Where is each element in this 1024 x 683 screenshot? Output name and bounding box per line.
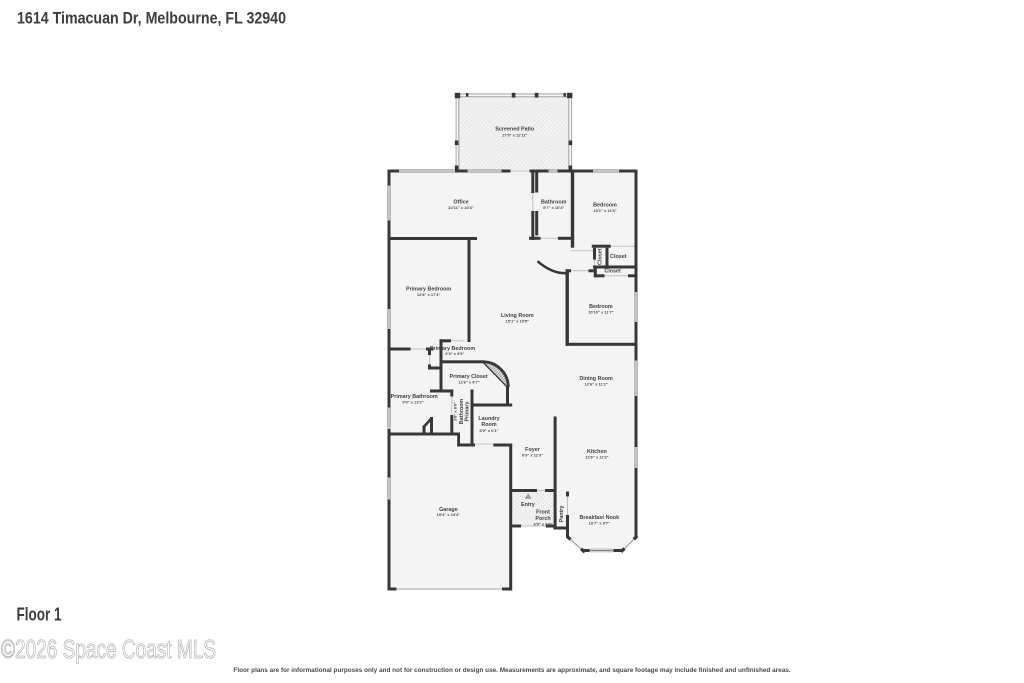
svg-text:Closet: Closet: [604, 268, 621, 274]
svg-text:12'6" x 6'7": 12'6" x 6'7": [458, 379, 479, 384]
svg-text:12'8" x 17'4": 12'8" x 17'4": [417, 292, 441, 297]
svg-text:Pantry: Pantry: [559, 506, 565, 523]
svg-text:12'6" x 11'2": 12'6" x 11'2": [584, 381, 607, 386]
svg-text:4'3" x 3'9": 4'3" x 3'9": [445, 351, 464, 356]
svg-text:10'10" x 11'7": 10'10" x 11'7": [588, 310, 614, 315]
svg-text:Laundry: Laundry: [478, 416, 499, 422]
svg-text:5'7" x 10'4": 5'7" x 10'4": [543, 205, 564, 210]
svg-text:15'1" x 19'5": 15'1" x 19'5": [506, 319, 530, 324]
svg-text:12'6" x 11'3": 12'6" x 11'3": [585, 455, 608, 460]
svg-text:9'9" x 13'2": 9'9" x 13'2": [402, 399, 423, 404]
svg-text:10'1" x 11'8": 10'1" x 11'8": [593, 208, 616, 213]
svg-text:10'7" x 9'7": 10'7" x 9'7": [589, 521, 610, 526]
svg-text:Front: Front: [536, 510, 550, 516]
svg-text:Closet: Closet: [610, 254, 627, 260]
svg-text:3'8" x 8'9": 3'8" x 8'9": [452, 402, 457, 421]
svg-text:8'9" x 6'1": 8'9" x 6'1": [479, 428, 498, 433]
svg-text:6'9" x 11'3": 6'9" x 11'3": [522, 452, 543, 457]
svg-text:17'9" x 11'11": 17'9" x 11'11": [502, 133, 527, 138]
svg-text:Closet: Closet: [597, 248, 603, 265]
svg-text:Floor plans are for informatio: Floor plans are for informational purpos…: [233, 667, 790, 674]
svg-text:22'11" x 10'4": 22'11" x 10'4": [448, 205, 474, 210]
svg-text:Bathroom: Bathroom: [459, 399, 465, 425]
svg-text:Entry: Entry: [521, 502, 535, 508]
svg-text:Primary: Primary: [465, 401, 471, 421]
svg-text:©2026 Space Coast MLS: ©2026 Space Coast MLS: [1, 636, 216, 664]
svg-text:1614 Timacuan Dr, Melbourne, F: 1614 Timacuan Dr, Melbourne, FL 32940: [17, 10, 286, 28]
svg-text:Floor 1: Floor 1: [17, 604, 62, 625]
svg-text:19'4" x 24'4": 19'4" x 24'4": [437, 512, 461, 517]
